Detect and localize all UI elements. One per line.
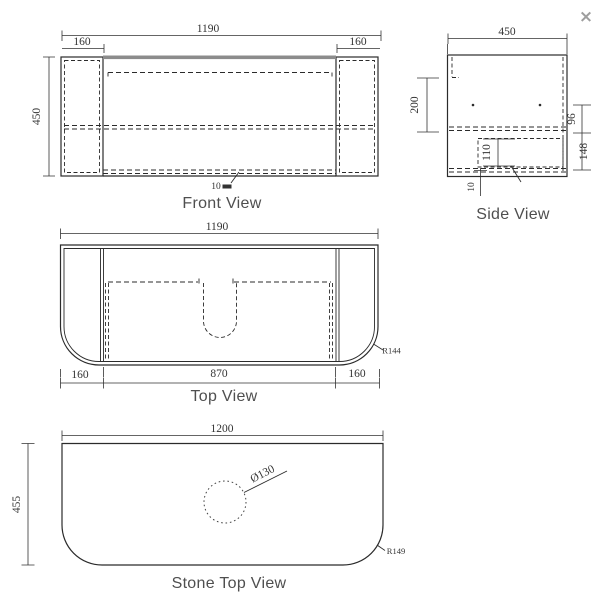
front-dim-end-right: 160	[337, 36, 380, 53]
top-hidden-lines	[106, 279, 333, 360]
front-view: 1190 160 160 450	[31, 23, 381, 212]
front-dim-end-left-label: 160	[73, 36, 91, 48]
top-basin-cutout	[204, 283, 237, 338]
stone-outline	[62, 444, 383, 566]
stone-dim-depth: 455	[11, 444, 35, 566]
front-hidden-lines	[64, 61, 375, 174]
front-top-band	[103, 56, 336, 60]
front-kick-swatch	[223, 185, 232, 189]
stone-dim-width-label: 1200	[211, 423, 234, 435]
side-hidden-lines	[449, 57, 566, 172]
top-view-title: Top View	[190, 388, 257, 405]
top-dim-radius-label: R144	[382, 346, 401, 356]
front-dim-width-label: 1190	[197, 23, 220, 35]
stone-top-view-title: Stone Top View	[172, 575, 287, 592]
side-dim-depth: 450	[448, 26, 568, 54]
side-dim-lower-label: 148	[578, 143, 590, 161]
top-dim-width: 1190	[61, 221, 379, 239]
side-dim-bottom-label: 10	[467, 182, 477, 192]
stone-tap-hole	[204, 481, 246, 523]
top-view: 1190 R144 160 870	[61, 221, 402, 405]
front-dim-height: 450	[31, 57, 55, 176]
front-dim-height-label: 450	[31, 108, 43, 126]
side-view: 450 200 110 96	[409, 26, 591, 223]
front-cabinet-outline	[61, 56, 378, 177]
front-dim-end-right-label: 160	[349, 36, 367, 48]
top-dim-width-label: 1190	[206, 221, 229, 233]
side-dim-upper: 200	[409, 78, 439, 132]
side-dim-inner: 110	[481, 139, 515, 166]
side-cabinet-outline	[448, 55, 568, 177]
side-dim-depth-label: 450	[498, 26, 516, 38]
top-dim-center-label: 870	[210, 368, 228, 380]
stone-hole-callout: Ø130	[244, 463, 287, 492]
top-dim-end-right-label: 160	[348, 368, 366, 380]
front-view-title: Front View	[182, 195, 261, 212]
side-dim-upper-label: 200	[409, 96, 421, 114]
side-dim-right: 96 148	[566, 105, 591, 170]
stone-dim-hole-label: Ø130	[249, 463, 277, 485]
top-radius-callout: R144	[374, 344, 402, 356]
stone-dim-radius-label: R149	[387, 546, 405, 556]
stone-dim-width: 1200	[62, 423, 383, 441]
technical-drawing: 1190 160 160 450	[0, 0, 600, 596]
stone-dim-depth-label: 455	[11, 496, 23, 514]
side-view-title: Side View	[476, 206, 550, 223]
side-dim-mid-label: 96	[566, 113, 578, 125]
front-dim-width: 1190	[62, 23, 381, 41]
stone-radius-callout: R149	[377, 545, 405, 556]
side-dim-inner-label: 110	[481, 144, 493, 161]
stone-top-view: 1200 455 Ø130 R149 Stone Top View	[11, 423, 405, 592]
side-dim-bottom: 10	[467, 166, 521, 196]
front-dim-thickness-label: 10	[211, 182, 221, 192]
drawing-page: 1190 160 160 450	[0, 0, 600, 596]
top-dim-end-left-label: 160	[71, 369, 89, 381]
front-kick-callout: 10	[211, 172, 239, 192]
top-dim-bottom: 160 870 160	[61, 367, 380, 389]
front-dim-end-left: 160	[62, 36, 104, 53]
close-icon[interactable]: ×	[576, 8, 596, 28]
